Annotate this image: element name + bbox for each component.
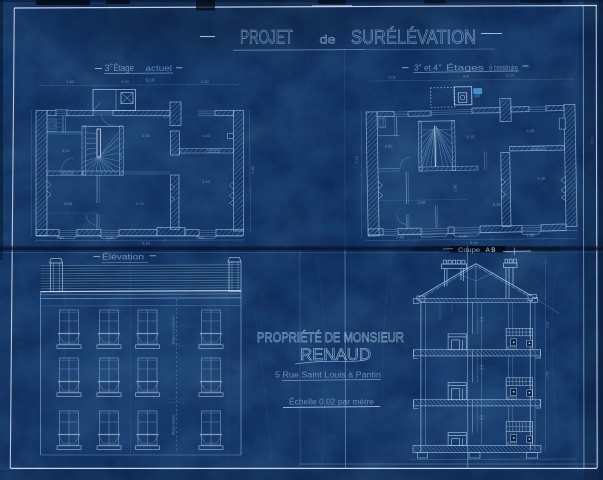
svg-text:Étage actuel: Étage actuel xyxy=(171,415,176,435)
svg-text:1.48: 1.48 xyxy=(396,235,405,240)
svg-text:7.10: 7.10 xyxy=(355,156,359,163)
svg-text:9.19: 9.19 xyxy=(146,78,155,83)
svg-text:5 Rue Saint Louis à Pantin: 5 Rue Saint Louis à Pantin xyxy=(275,371,381,380)
svg-text:2.60: 2.60 xyxy=(201,79,210,84)
svg-text:et 4: et 4 xyxy=(424,63,438,73)
svg-text:3.40: 3.40 xyxy=(202,179,211,184)
svg-text:4.40: 4.40 xyxy=(202,133,211,138)
svg-text:1.90: 1.90 xyxy=(453,185,457,192)
svg-text:de: de xyxy=(320,33,336,47)
svg-text:0.9: 0.9 xyxy=(164,115,169,119)
svg-text:9.19: 9.19 xyxy=(470,240,479,245)
svg-text:A B: A B xyxy=(486,247,496,254)
svg-text:Coupe: Coupe xyxy=(458,248,481,254)
svg-text:0.90: 0.90 xyxy=(121,79,130,84)
svg-text:2.50: 2.50 xyxy=(106,235,115,240)
svg-text:5.10: 5.10 xyxy=(136,201,145,206)
svg-text:2.20: 2.20 xyxy=(196,235,205,240)
svg-text:PROJET: PROJET xyxy=(240,28,293,49)
svg-text:1.48: 1.48 xyxy=(526,233,535,238)
svg-text:3.18: 3.18 xyxy=(493,202,502,207)
svg-text:2.60: 2.60 xyxy=(546,322,550,329)
svg-text:Élévation: Élévation xyxy=(102,252,144,261)
svg-text:actuel: actuel xyxy=(146,63,173,73)
svg-text:1.90: 1.90 xyxy=(119,153,123,160)
svg-text:2.24: 2.24 xyxy=(506,73,515,78)
svg-text:4.40: 4.40 xyxy=(526,128,535,133)
svg-text:Étage à surélever: Étage à surélever xyxy=(171,315,176,344)
svg-text:2.60: 2.60 xyxy=(251,166,255,173)
svg-text:2.55: 2.55 xyxy=(142,133,151,138)
svg-text:1.40: 1.40 xyxy=(66,79,75,84)
svg-text:2.01: 2.01 xyxy=(388,75,397,80)
svg-text:Étages: Étages xyxy=(446,63,484,73)
svg-text:3.04: 3.04 xyxy=(459,234,468,239)
svg-text:3: 3 xyxy=(105,63,110,74)
svg-text:SURÉLÉVATION: SURÉLÉVATION xyxy=(351,28,476,49)
svg-text:2.60: 2.60 xyxy=(546,372,550,379)
svg-text:A B: A B xyxy=(463,74,470,79)
svg-text:Échelle 0,02 par mètre: Échelle 0,02 par mètre xyxy=(289,398,374,407)
svg-text:Étage: Étage xyxy=(114,63,135,73)
svg-text:PROPRIÉTÉ DE MONSIEUR: PROPRIÉTÉ DE MONSIEUR xyxy=(257,329,404,345)
svg-text:5.10: 5.10 xyxy=(467,134,476,139)
svg-text:4.08: 4.08 xyxy=(418,200,427,205)
svg-text:1.50: 1.50 xyxy=(56,235,65,240)
svg-text:4.08: 4.08 xyxy=(64,201,73,206)
svg-text:7.10: 7.10 xyxy=(590,136,594,143)
svg-text:9.19: 9.19 xyxy=(142,241,151,246)
svg-text:3.10: 3.10 xyxy=(62,148,71,153)
svg-text:3.05: 3.05 xyxy=(385,144,394,149)
svg-text:2.40: 2.40 xyxy=(537,176,546,181)
